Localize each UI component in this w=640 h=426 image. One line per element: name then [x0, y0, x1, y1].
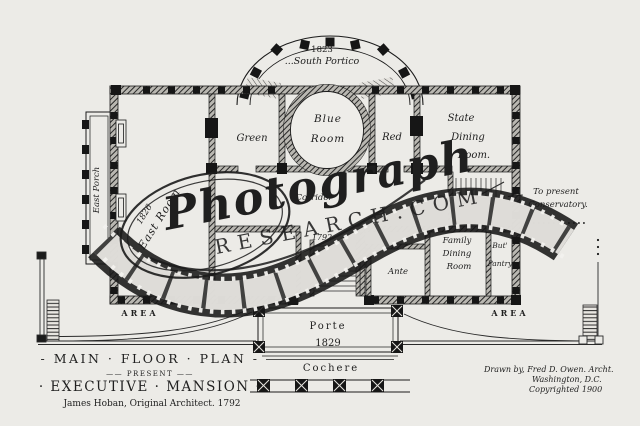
credit-drawn-by: Drawn by, Fred D. Owen. Archt. [483, 365, 614, 374]
green-room-label: Green [236, 133, 267, 144]
family-dining-label-3: Room [446, 262, 472, 272]
title-line-main-floor-plan: - MAIN · FLOOR · PLAN - [41, 351, 260, 366]
title-line-architect: James Hoban, Original Architect. 1792 [62, 399, 240, 409]
title-block: - MAIN · FLOOR · PLAN - —— PRESENT —— · … [39, 351, 261, 409]
cochere-label: Cochere [303, 363, 359, 374]
title-line-present: —— PRESENT —— [106, 370, 194, 378]
scanned-floor-plan: 1823 ...South Portico East Porch [0, 0, 640, 426]
porte-label: Porte [309, 321, 346, 332]
state-dining-label-1: State [448, 113, 475, 124]
credit-city: Washington, D.C. [532, 375, 602, 384]
portico-year: 1823 [311, 45, 333, 55]
pantry-label-2: Pantry [487, 259, 514, 268]
blue-room-label-2: Room [310, 133, 346, 145]
credit-copyright: Copyrighted 1900 [529, 385, 602, 394]
pantry-label-1: But' [491, 241, 507, 250]
family-dining-label-2: Dining [442, 249, 472, 259]
area-right-label: AREA [490, 308, 528, 318]
title-line-executive-mansion: · EXECUTIVE · MANSION · [39, 379, 261, 395]
conservatory-label-line1: To present [533, 187, 579, 197]
east-porch-label: East Porch [92, 167, 102, 215]
family-dining-label-1: Family [442, 236, 472, 246]
ante-room-label: Ante [387, 267, 408, 277]
blue-room-label-1: Blue [313, 113, 342, 125]
area-left-label: AREA [120, 308, 158, 318]
portico-label: ...South Portico [285, 56, 360, 67]
floor-plan-svg: 1823 ...South Portico East Porch [0, 0, 640, 426]
porte-year-label: 1829 [315, 338, 340, 349]
